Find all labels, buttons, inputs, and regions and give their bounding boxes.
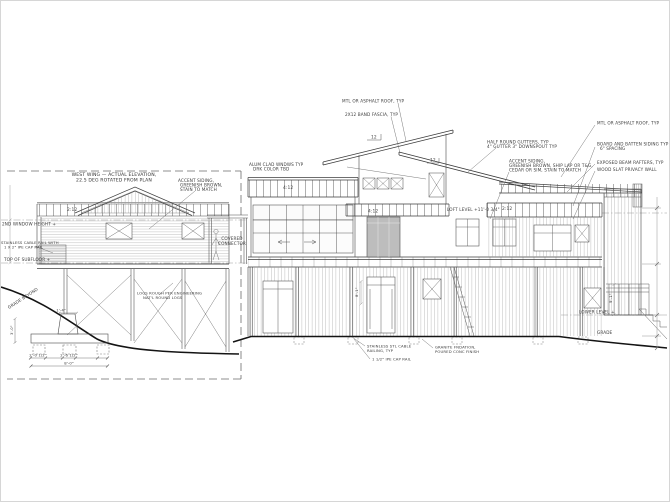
- architectural-sheet: WEST WING — ACTUAL ELEVATION, 22.5 DEG R…: [0, 0, 670, 502]
- note-cable-rail-2: 1 X 2" IPE CAP RAIL: [4, 245, 44, 250]
- note-rafters: EXPOSED BEAM RAFTERS, TYP: [597, 160, 664, 165]
- west-wing-title-line2: 22.5 DEG ROTATED FROM PLAN: [76, 178, 152, 184]
- elevation-drawing: WEST WING — ACTUAL ELEVATION, 22.5 DEG R…: [1, 1, 669, 501]
- pitch-label-left: 4:12: [283, 185, 293, 191]
- dim-post-height: 8'-1": [354, 287, 359, 297]
- datum-lower-level: LOWER LEVEL +: [579, 310, 615, 315]
- west-wing-title-line1: WEST WING — ACTUAL ELEVATION,: [72, 172, 157, 178]
- right-stairs: [639, 309, 667, 339]
- note-gutters-2: 4" GUTTER 3" DOWNSPOUT TYP: [487, 144, 557, 149]
- note-fascia: 2X12 BAND FASCIA, TYP: [345, 112, 398, 117]
- west-wing-elevation: [1, 171, 241, 379]
- label-connector: CONNECTOR: [218, 241, 246, 246]
- datum-grade: GRADE: [597, 330, 613, 335]
- note-roof-center: MTL OR ASPHALT ROOF, TYP: [342, 99, 405, 104]
- dim-pier: 1'-4": [56, 308, 66, 313]
- datum-subfloor: TOP OF SUBFLOOR +: [3, 257, 51, 262]
- dim-depth: 3'-0": [9, 325, 14, 335]
- pitch-label-tower: 4:12: [368, 209, 378, 215]
- clerestory-windows: [363, 173, 444, 197]
- note-accent-siding-3: STAIN TO MATCH: [180, 187, 217, 192]
- note-clad-2: DRK COLOR TBD: [253, 167, 289, 172]
- dim-overall: 8'-0": [64, 361, 74, 366]
- rise-label-a: 12: [371, 135, 377, 141]
- pitch-label-right: 2:12: [502, 206, 512, 212]
- note-privacy: WOOD SLAT PRIVACY WALL: [597, 167, 657, 172]
- note-siding-3: CEDAR OR SIM, STAIN TO MATCH: [509, 168, 581, 173]
- pitch-label-west: 2:12: [67, 207, 77, 213]
- note-bnb-2: 6" SPACING: [600, 146, 625, 151]
- datum-loft-level: LOFT LEVEL +11'-0 3/4": [447, 207, 500, 212]
- note-roof-right: MTL OR ASPHALT ROOF, TYP: [597, 121, 660, 126]
- log-posts: [64, 269, 229, 352]
- dim-footing-2: 2'-6 1/2": [60, 353, 78, 358]
- foundation-section: [14, 312, 110, 368]
- grade-line-west: [1, 287, 239, 354]
- dim-footing-1: 2'-0 1/2": [29, 353, 47, 358]
- rise-label-b: 12: [430, 158, 436, 164]
- note-logs-2: NAT'L ROUND LOGS: [143, 295, 183, 300]
- dim-right-height: 9'-1": [608, 293, 613, 303]
- note-ipe: 1 1/2" IPE CAP RAIL: [372, 357, 412, 362]
- note-rail-2: RAILING, TYP: [367, 348, 394, 353]
- note-granite-2: POURED CONC FINISH: [435, 349, 479, 354]
- datum-window-height: 2ND WINDOW HEIGHT +: [2, 222, 56, 227]
